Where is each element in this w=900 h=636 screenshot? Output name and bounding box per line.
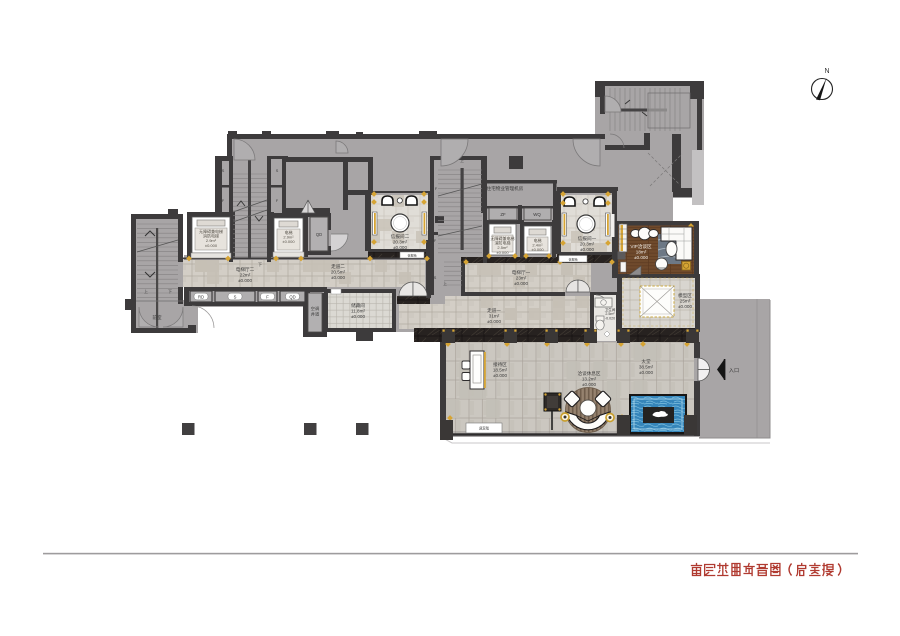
svg-text:S: S [234,295,237,300]
svg-text:-0.020: -0.020 [605,316,615,320]
svg-text:±0.000: ±0.000 [331,275,345,280]
svg-text:前室: 前室 [152,314,162,321]
svg-text:±0.000: ±0.000 [351,314,365,319]
svg-text:S: S [222,169,225,173]
svg-text:F: F [266,295,269,300]
svg-text:31m²: 31m² [489,313,500,318]
svg-text:上: 上 [144,288,148,294]
svg-text:±0.000: ±0.000 [514,281,528,286]
svg-text:下: 下 [258,262,262,267]
svg-text:25m²: 25m² [680,298,691,303]
svg-text:20.3m²: 20.3m² [580,241,595,246]
svg-text:±0.000: ±0.000 [487,319,501,324]
svg-text:±0.000: ±0.000 [634,255,648,260]
svg-text:18.5m²: 18.5m² [493,367,508,372]
svg-text:±0.000: ±0.000 [580,247,594,252]
svg-text:±0.000: ±0.000 [238,278,252,283]
svg-text:井道: 井道 [311,310,320,317]
svg-text:QD: QD [316,232,322,237]
svg-text:18m²: 18m² [636,249,647,254]
svg-text:N: N [824,68,829,75]
svg-text:±0.000: ±0.000 [531,247,544,252]
svg-text:23m²: 23m² [516,275,527,280]
svg-text:下: 下 [168,289,172,294]
svg-text:ZF: ZF [500,212,506,217]
svg-text:S: S [434,276,437,280]
svg-text:13.2m²: 13.2m² [582,376,597,381]
svg-text:±0.000: ±0.000 [678,304,692,309]
svg-text:RD: RD [198,295,204,300]
svg-text:11.8m²: 11.8m² [351,308,365,313]
svg-text:住宅物业管理机房: 住宅物业管理机房 [487,185,524,192]
svg-text:38.5m²: 38.5m² [639,364,654,369]
svg-text:20.5m²: 20.5m² [331,269,346,274]
svg-text:上: 上 [443,281,447,286]
svg-text:22m²: 22m² [240,272,251,277]
svg-text:±0.000: ±0.000 [282,239,295,244]
svg-text:S: S [276,169,279,173]
svg-text:2F: 2F [432,239,437,243]
svg-text:±0.000: ±0.000 [205,243,218,248]
svg-text:20.3m²: 20.3m² [393,239,408,244]
svg-text:WQ: WQ [533,212,541,217]
svg-text:上: 上 [460,158,464,163]
svg-text:±0.000: ±0.000 [493,373,507,378]
svg-text:QD: QD [289,295,295,300]
svg-text:±0.000: ±0.000 [639,370,653,375]
svg-text:信报箱: 信报箱 [407,253,416,258]
svg-text:入口: 入口 [729,367,739,374]
svg-text:迎宾毯: 迎宾毯 [479,426,490,431]
svg-text:±0.000: ±0.000 [393,245,407,250]
svg-text:信报箱: 信报箱 [568,257,577,262]
svg-text:±0.000: ±0.000 [496,250,509,255]
svg-text:±0.000: ±0.000 [582,382,596,387]
